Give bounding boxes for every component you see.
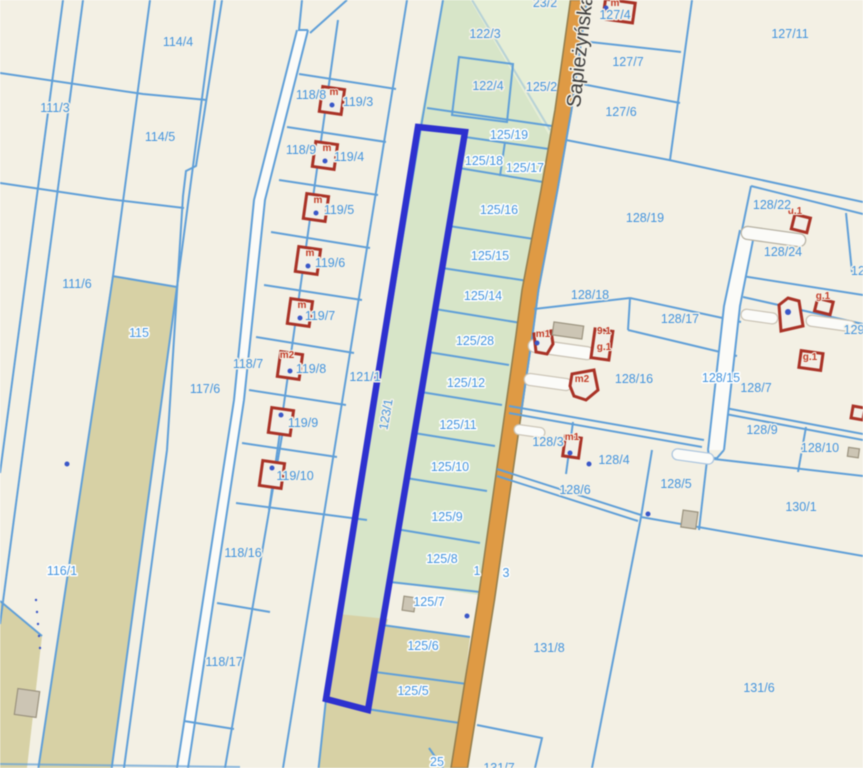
svg-text:128/5: 128/5 [660, 477, 691, 491]
svg-text:129: 129 [844, 323, 863, 337]
svg-text:127/4: 127/4 [599, 8, 630, 22]
svg-text:125/28: 125/28 [456, 334, 494, 348]
svg-text:128/24: 128/24 [764, 245, 802, 259]
svg-text:m2: m2 [575, 374, 590, 385]
svg-text:m1: m1 [565, 432, 580, 443]
svg-text:125/15: 125/15 [471, 249, 509, 263]
svg-text:128/3: 128/3 [532, 435, 563, 449]
svg-text:125/17: 125/17 [506, 161, 544, 175]
svg-text:118/16: 118/16 [224, 546, 261, 560]
svg-text:118/7: 118/7 [233, 357, 263, 371]
svg-text:128/22: 128/22 [753, 198, 791, 212]
svg-text:117/6: 117/6 [190, 382, 220, 396]
svg-text:125/18: 125/18 [465, 154, 503, 168]
svg-text:3: 3 [503, 566, 510, 580]
svg-text:111/3: 111/3 [40, 101, 69, 115]
svg-text:116/1: 116/1 [47, 564, 77, 578]
svg-text:125/12: 125/12 [447, 376, 485, 390]
svg-text:119/5: 119/5 [324, 203, 354, 217]
svg-text:119/8: 119/8 [296, 362, 326, 376]
svg-text:m2: m2 [280, 350, 295, 361]
svg-text:128/6: 128/6 [559, 483, 590, 497]
svg-text:119/6: 119/6 [315, 256, 345, 270]
svg-text:111/6: 111/6 [62, 277, 91, 291]
svg-text:122/4: 122/4 [472, 79, 503, 93]
svg-text:119/4: 119/4 [334, 150, 364, 164]
svg-text:125/8: 125/8 [426, 552, 457, 566]
svg-text:114/5: 114/5 [145, 130, 175, 144]
svg-text:125/5: 125/5 [397, 684, 428, 698]
svg-text:g.1: g.1 [816, 291, 831, 302]
svg-text:125/19: 125/19 [490, 128, 528, 142]
svg-text:130/1: 130/1 [785, 500, 816, 514]
svg-text:25: 25 [430, 755, 444, 768]
svg-text:m: m [330, 87, 339, 98]
svg-text:128/15: 128/15 [702, 371, 740, 385]
svg-text:128/17: 128/17 [661, 312, 699, 326]
svg-text:128/10: 128/10 [801, 441, 839, 455]
svg-text:131/8: 131/8 [533, 641, 564, 655]
svg-text:128/18: 128/18 [571, 288, 609, 302]
svg-text:114/4: 114/4 [163, 35, 193, 49]
svg-text:118/8: 118/8 [296, 88, 326, 102]
svg-text:127/7: 127/7 [612, 55, 643, 69]
svg-text:115: 115 [129, 326, 149, 340]
svg-text:m: m [323, 143, 332, 154]
svg-text:g.1: g.1 [803, 352, 818, 363]
svg-text:119/3: 119/3 [343, 95, 373, 109]
svg-text:122/3: 122/3 [469, 27, 500, 41]
svg-text:118/9: 118/9 [286, 143, 316, 157]
svg-text:m: m [314, 195, 323, 206]
svg-text:127/6: 127/6 [605, 105, 636, 119]
svg-text:125/6: 125/6 [407, 639, 438, 653]
svg-text:125/11: 125/11 [439, 418, 476, 432]
svg-text:121/1: 121/1 [349, 370, 380, 384]
svg-text:128/19: 128/19 [626, 211, 664, 225]
svg-text:118/17: 118/17 [205, 655, 242, 669]
svg-text:128/9: 128/9 [746, 423, 777, 437]
svg-text:128/16: 128/16 [615, 372, 653, 386]
svg-text:m: m [306, 248, 315, 259]
svg-text:131/7: 131/7 [483, 761, 514, 768]
svg-text:119/9: 119/9 [288, 416, 318, 430]
svg-text:125/16: 125/16 [480, 203, 518, 217]
svg-text:1: 1 [474, 564, 481, 578]
svg-text:119/7: 119/7 [305, 309, 335, 323]
svg-text:128/7: 128/7 [740, 381, 771, 395]
svg-text:119/10: 119/10 [276, 469, 313, 483]
svg-text:9.1: 9.1 [597, 326, 611, 337]
svg-text:m1: m1 [536, 329, 551, 340]
svg-text:125/10: 125/10 [431, 460, 469, 474]
svg-text:128/4: 128/4 [598, 453, 629, 467]
svg-text:12: 12 [851, 264, 863, 278]
svg-text:125/14: 125/14 [464, 289, 502, 303]
svg-text:131/6: 131/6 [743, 681, 774, 695]
svg-text:g.1: g.1 [597, 342, 612, 353]
svg-text:125/9: 125/9 [431, 510, 462, 524]
svg-text:125/7: 125/7 [413, 595, 444, 609]
svg-text:23/2: 23/2 [533, 0, 557, 10]
svg-text:127/11: 127/11 [771, 27, 808, 41]
